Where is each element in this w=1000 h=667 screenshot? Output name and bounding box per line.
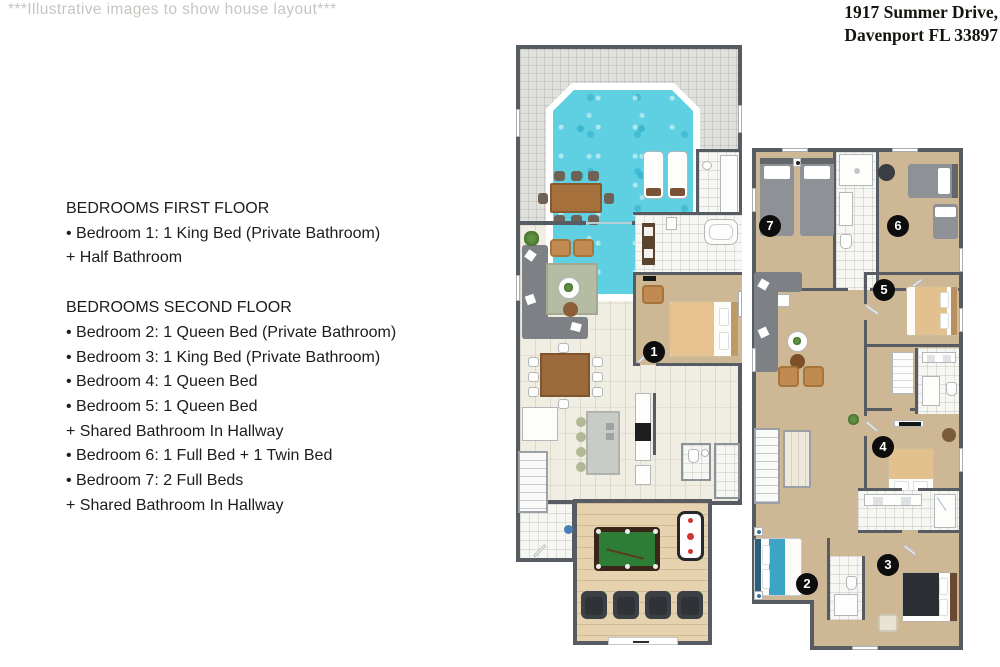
bedroom-2-marker: 2	[796, 573, 818, 595]
dining-chair	[592, 387, 603, 397]
patio-chair	[538, 193, 548, 204]
nightstand	[754, 591, 763, 600]
second-floor-title: BEDROOMS SECOND FLOOR	[66, 296, 396, 321]
wall	[858, 488, 902, 491]
dining-chair	[528, 357, 539, 367]
theater-chair	[645, 591, 671, 619]
queen-bed	[906, 286, 958, 336]
bedroom-6-marker: 6	[887, 215, 909, 237]
twin-bed	[933, 204, 958, 239]
tv-console	[894, 420, 924, 427]
wall	[633, 212, 742, 215]
staircase	[754, 428, 780, 504]
info-line: + Half Bathroom	[66, 246, 396, 271]
shower	[839, 154, 873, 186]
toilet	[846, 576, 857, 590]
floor-notch	[752, 604, 810, 650]
stove	[635, 423, 651, 441]
dining-chair	[558, 343, 569, 353]
theater-chair	[581, 591, 607, 619]
patio-table	[550, 183, 602, 213]
bar-stool	[576, 447, 586, 457]
disclaimer-text: ***Illustrative images to show house lay…	[8, 1, 337, 19]
wall	[810, 646, 963, 650]
wall	[516, 221, 586, 225]
bedroom-1-marker: 1	[643, 341, 665, 363]
patio-chair	[604, 193, 614, 204]
door	[865, 420, 878, 432]
wall	[810, 600, 814, 650]
dining-chair	[592, 357, 603, 367]
dining-table	[540, 353, 590, 397]
toilet	[688, 449, 699, 463]
armchair	[550, 239, 571, 257]
wall	[827, 538, 830, 620]
window	[852, 646, 878, 650]
flyer-page: { "header": { "disclaimer": "***Illustra…	[0, 0, 1000, 667]
wall	[864, 344, 867, 416]
sink	[701, 449, 709, 457]
patio-chair	[554, 171, 565, 181]
armchair	[803, 366, 824, 387]
address-line-1: 1917 Summer Drive,	[844, 1, 998, 24]
theater-chair	[677, 591, 703, 619]
wall	[915, 348, 918, 414]
window	[892, 148, 918, 152]
full-bed	[800, 158, 834, 236]
wall	[864, 320, 867, 347]
wall	[796, 288, 848, 291]
wall	[862, 556, 865, 620]
dining-chair	[592, 372, 603, 382]
patio-chair	[588, 171, 599, 181]
pool-table	[594, 527, 660, 571]
bedroom-4-marker: 4	[872, 436, 894, 458]
bedroom-5-marker: 5	[873, 279, 895, 301]
window	[752, 348, 756, 372]
round-chair	[878, 164, 895, 181]
queen-bed-teal	[754, 538, 802, 596]
wall	[864, 344, 963, 347]
door	[865, 304, 879, 315]
info-line: • Bedroom 6: 1 Full Bed + 1 Twin Bed	[66, 444, 396, 469]
bedroom-7-marker: 7	[759, 215, 781, 237]
closet	[522, 407, 558, 441]
first-floor-title: BEDROOMS FIRST FLOOR	[66, 197, 396, 222]
info-line: • Bedroom 3: 1 King Bed (Private Bathroo…	[66, 346, 396, 371]
kitchen-island	[586, 411, 620, 475]
table-plant	[793, 337, 801, 345]
wall	[858, 530, 902, 533]
bedroom-info-list: BEDROOMS FIRST FLOOR • Bedroom 1: 1 King…	[66, 197, 396, 518]
armchair	[778, 366, 799, 387]
wall	[864, 272, 867, 304]
address-line-2: Davenport FL 33897	[844, 24, 998, 47]
wall	[864, 436, 867, 490]
staircase	[518, 451, 548, 513]
double-vanity	[864, 494, 922, 506]
dining-chair	[528, 372, 539, 382]
toilet	[946, 382, 957, 396]
sun-lounger	[667, 151, 688, 199]
nightstand	[793, 158, 801, 167]
theater-chair	[613, 591, 639, 619]
bar-stool	[576, 432, 586, 442]
shower	[922, 376, 940, 406]
ottoman	[563, 302, 578, 317]
air-hockey-table	[677, 511, 704, 561]
dining-chair	[558, 399, 569, 409]
info-line: • Bedroom 1: 1 King Bed (Private Bathroo…	[66, 222, 396, 247]
window	[752, 188, 756, 212]
first-floor-plan: 1	[516, 45, 742, 645]
info-line: • Bedroom 4: 1 Queen Bed	[66, 370, 396, 395]
shower	[720, 155, 738, 213]
second-floor-plan: 7 6 5 4	[752, 148, 963, 650]
dining-chair	[528, 387, 539, 397]
tv	[643, 276, 656, 281]
info-line: • Bedroom 5: 1 Queen Bed	[66, 395, 396, 420]
window	[782, 148, 808, 152]
hall-closet	[714, 443, 740, 499]
toilet	[840, 234, 852, 249]
sun-lounger	[643, 151, 664, 199]
armchair	[642, 285, 664, 304]
wall	[864, 272, 963, 275]
wall	[752, 600, 814, 604]
bar-stool	[576, 462, 586, 472]
sliding-glass-door	[586, 222, 632, 224]
armchair	[878, 614, 898, 632]
window	[959, 448, 963, 472]
property-address: 1917 Summer Drive, Davenport FL 33897	[844, 1, 998, 47]
stair-opening	[783, 430, 811, 488]
wall	[633, 272, 636, 365]
appliance	[564, 525, 573, 534]
info-line: + Shared Bathroom In Hallway	[66, 494, 396, 519]
wall	[864, 408, 892, 411]
shower	[934, 494, 956, 528]
nightstand	[754, 527, 763, 536]
info-line: + Shared Bathroom In Hallway	[66, 420, 396, 445]
bathroom-vanity	[922, 352, 956, 363]
armchair	[573, 239, 594, 257]
window	[959, 248, 963, 272]
wall	[959, 148, 963, 650]
bathroom-vanity	[839, 192, 853, 226]
king-bed	[669, 301, 739, 357]
full-bed	[908, 164, 958, 198]
bedroom-3-marker: 3	[877, 554, 899, 576]
king-bed-dark	[902, 572, 958, 622]
toilet	[666, 217, 677, 230]
window	[516, 275, 520, 301]
window	[516, 109, 520, 137]
table-plant	[564, 283, 573, 292]
wall	[918, 488, 959, 491]
window	[738, 105, 742, 133]
door	[903, 544, 917, 556]
wall	[633, 272, 742, 275]
info-line: • Bedroom 7: 2 Full Beds	[66, 469, 396, 494]
closet	[892, 352, 914, 394]
window	[738, 291, 742, 317]
bathroom-vanity	[642, 223, 655, 265]
patio-chair	[571, 171, 582, 181]
shower	[834, 594, 858, 616]
bathtub	[704, 219, 738, 245]
wall	[656, 363, 742, 366]
window	[959, 308, 963, 332]
refrigerator	[635, 465, 651, 485]
garage-door	[608, 637, 678, 645]
info-line: • Bedroom 2: 1 Queen Bed (Private Bathro…	[66, 321, 396, 346]
wall	[653, 393, 656, 455]
bar-stool	[576, 417, 586, 427]
wall	[918, 530, 959, 533]
pouf	[942, 428, 956, 442]
potted-plant	[848, 414, 859, 425]
potted-plant	[524, 231, 539, 246]
sink	[702, 161, 712, 170]
